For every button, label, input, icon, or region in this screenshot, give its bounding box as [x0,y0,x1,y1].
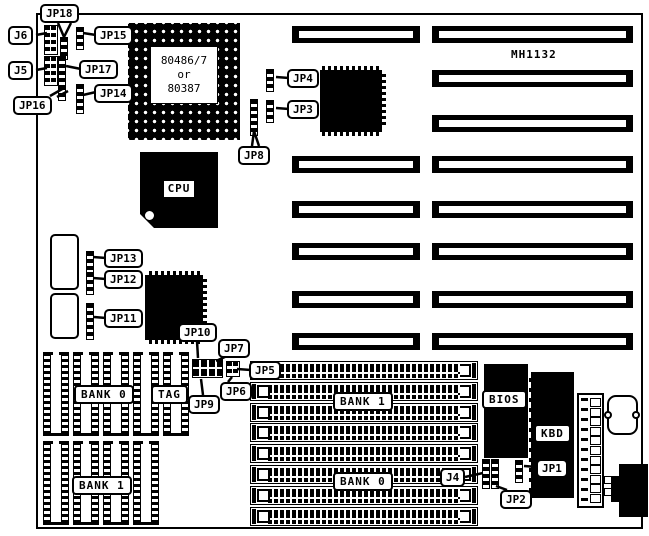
motherboard-diagram: MH1132 80486/7 or 80387 CPU BIOS KBD JP1… [0,0,649,536]
callout-jp4: JP4 [287,69,319,88]
callout-j6: J6 [8,26,33,45]
callout-jp11: JP11 [104,309,143,328]
callout-jp5: JP5 [249,361,281,380]
callout-jp2: JP2 [500,490,532,509]
callout-jp3: JP3 [287,100,319,119]
simm-bank1-label: BANK 1 [333,392,393,411]
kbd-chip-label: KBD [534,424,571,443]
simm-bank0-label: BANK 0 [333,472,393,491]
callout-jp6: JP6 [220,382,252,401]
leader-lines [0,0,649,536]
callout-jp13: JP13 [104,249,143,268]
cache-tag-label: TAG [151,385,188,404]
callout-jp10: JP10 [178,323,217,342]
cache-bank0-label: BANK 0 [74,385,134,404]
bios-chip-label: BIOS [482,390,527,409]
callout-jp8: JP8 [238,146,270,165]
callout-jp18: JP18 [40,4,79,23]
cache-bank1-label: BANK 1 [72,476,132,495]
callout-j4: J4 [440,468,465,487]
callout-jp7: JP7 [218,339,250,358]
callout-jp1: JP1 [536,459,568,478]
callout-jp12: JP12 [104,270,143,289]
callout-jp16: JP16 [13,96,52,115]
callout-jp15: JP15 [94,26,133,45]
callout-j5: J5 [8,61,33,80]
callout-jp17: JP17 [79,60,118,79]
callout-jp9: JP9 [188,395,220,414]
callout-jp14: JP14 [94,84,133,103]
